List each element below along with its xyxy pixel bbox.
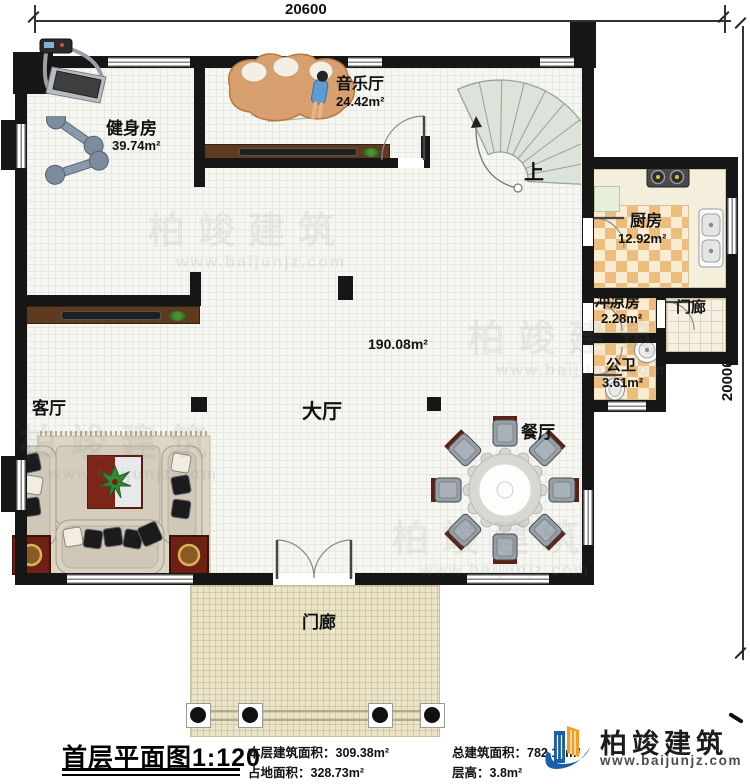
plant-icon bbox=[363, 148, 379, 157]
window bbox=[16, 460, 26, 510]
room-area-music: 24.42m² bbox=[336, 95, 384, 109]
spiral-staircase-figure bbox=[437, 66, 583, 206]
front-porch-floor bbox=[190, 585, 440, 737]
room-label-side-porch: 门廊 bbox=[676, 300, 706, 317]
room-label-dining: 餐厅 bbox=[521, 424, 555, 443]
room-area-shower: 2.28m² bbox=[601, 312, 642, 326]
hall-area: 190.08m² bbox=[368, 337, 428, 352]
dimension-tick bbox=[734, 17, 746, 29]
window bbox=[583, 490, 593, 545]
room-label-gym: 健身房 bbox=[106, 120, 157, 139]
room-label-kitchen: 厨房 bbox=[630, 213, 662, 231]
dining-table-figure bbox=[427, 412, 583, 568]
brand-website: www.baijunjz.com bbox=[600, 753, 742, 768]
kitchen-sink-figure bbox=[698, 208, 724, 268]
stat-floor-area: 本层建筑面积：309.38m² bbox=[248, 742, 389, 761]
tv-icon bbox=[239, 148, 357, 156]
stair-direction: 上 bbox=[524, 162, 544, 184]
porch-column bbox=[238, 703, 263, 728]
porch-column bbox=[420, 703, 445, 728]
wall-pilaster bbox=[1, 456, 15, 512]
right-dimension-line bbox=[742, 26, 744, 660]
wall-stub bbox=[338, 276, 353, 300]
right-dimension-label: 20000 bbox=[720, 342, 737, 418]
room-area-toilet: 3.61m² bbox=[602, 376, 643, 390]
wall-stub bbox=[190, 272, 201, 306]
dimension-extension bbox=[34, 5, 36, 33]
top-dimension-line bbox=[36, 20, 731, 22]
room-label-hall: 大厅 bbox=[302, 401, 342, 423]
kitchen-mat bbox=[594, 186, 620, 212]
room-label-living: 客厅 bbox=[32, 400, 66, 419]
title-underline bbox=[62, 768, 240, 771]
door-music-room bbox=[388, 114, 430, 164]
structural-column bbox=[191, 397, 207, 412]
wall-gym-bottom bbox=[15, 295, 201, 306]
stat-footprint-area: 占地面积：328.73m² bbox=[248, 762, 364, 781]
living-room-sofa-set-figure bbox=[12, 420, 212, 580]
room-label-music: 音乐厅 bbox=[336, 76, 384, 94]
porch-column bbox=[186, 703, 211, 728]
wall-pilaster bbox=[1, 120, 15, 170]
window bbox=[727, 198, 737, 254]
window bbox=[67, 574, 193, 584]
stove-figure bbox=[646, 166, 690, 188]
window bbox=[348, 57, 382, 67]
window bbox=[608, 401, 646, 411]
window bbox=[16, 124, 26, 168]
double-door-main-entrance bbox=[269, 536, 359, 582]
window bbox=[467, 574, 549, 584]
title-underline bbox=[62, 774, 240, 776]
room-label-toilet: 公卫 bbox=[606, 358, 636, 375]
room-label-front-porch: 门廊 bbox=[302, 614, 336, 633]
structural-column bbox=[427, 397, 441, 411]
treadmill-figure bbox=[34, 37, 114, 109]
porch-step-line bbox=[190, 719, 440, 721]
plant-icon bbox=[169, 311, 186, 321]
dumbbells-figure bbox=[44, 116, 110, 192]
window bbox=[540, 57, 574, 67]
window bbox=[108, 57, 190, 67]
brand-logo-icon bbox=[540, 720, 596, 774]
top-dimension-label: 20600 bbox=[281, 2, 331, 19]
room-area-gym: 39.74m² bbox=[112, 139, 160, 153]
brand-accent-stroke bbox=[728, 712, 744, 724]
stat-storey-height: 层高：3.8m² bbox=[452, 762, 522, 781]
dimension-tick bbox=[734, 647, 746, 659]
wall-wing-top bbox=[582, 157, 738, 169]
room-area-kitchen: 12.92m² bbox=[618, 232, 666, 246]
tv-icon bbox=[61, 311, 161, 320]
room-label-shower: 冲凉房 bbox=[595, 295, 640, 312]
tv-console-music bbox=[200, 144, 390, 159]
floor-plan-canvas: 20600 20000 bbox=[0, 0, 750, 784]
porch-column bbox=[368, 703, 393, 728]
tv-console-hall bbox=[18, 306, 200, 324]
porch-step-line bbox=[190, 710, 440, 712]
wall-shower-toilet-divider bbox=[582, 333, 656, 343]
dimension-extension bbox=[724, 5, 726, 33]
